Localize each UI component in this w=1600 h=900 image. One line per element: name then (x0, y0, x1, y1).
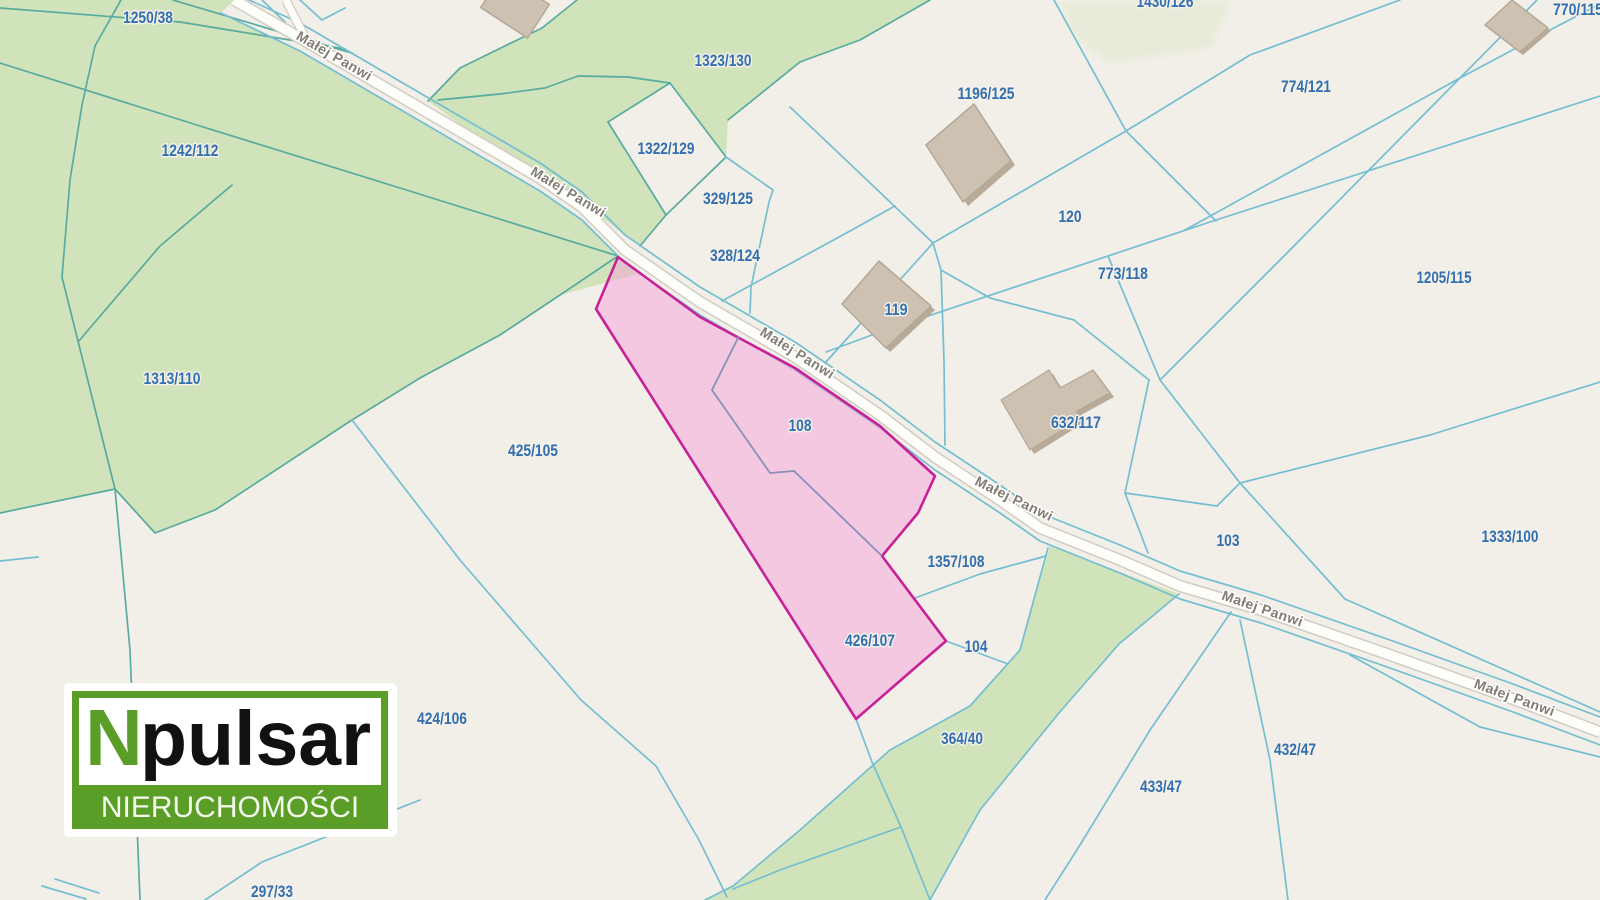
svg-text:120: 120 (1059, 207, 1082, 226)
svg-text:1357/108: 1357/108 (928, 552, 985, 571)
svg-text:1250/38: 1250/38 (123, 8, 173, 27)
svg-text:108: 108 (789, 416, 812, 435)
svg-text:1323/130: 1323/130 (695, 51, 752, 70)
svg-text:328/124: 328/124 (710, 246, 760, 265)
svg-text:1322/129: 1322/129 (638, 139, 695, 158)
svg-text:1430/126: 1430/126 (1137, 0, 1194, 11)
svg-text:1196/125: 1196/125 (958, 84, 1015, 103)
svg-text:433/47: 433/47 (1140, 777, 1182, 796)
svg-text:770/115: 770/115 (1553, 0, 1600, 19)
svg-text:426/107: 426/107 (845, 631, 895, 650)
svg-text:297/33: 297/33 (251, 882, 293, 900)
svg-text:104: 104 (965, 637, 988, 656)
svg-text:774/121: 774/121 (1281, 77, 1331, 96)
svg-text:1313/110: 1313/110 (144, 369, 201, 388)
svg-text:103: 103 (1217, 531, 1240, 550)
svg-text:773/118: 773/118 (1098, 264, 1148, 283)
svg-text:pulsar: pulsar (140, 696, 371, 782)
svg-text:1242/112: 1242/112 (162, 141, 219, 160)
svg-text:329/125: 329/125 (703, 189, 753, 208)
svg-text:364/40: 364/40 (941, 729, 983, 748)
svg-text:424/106: 424/106 (417, 709, 467, 728)
svg-text:119: 119 (885, 300, 908, 319)
svg-text:1205/115: 1205/115 (1417, 268, 1472, 287)
svg-text:NIERUCHOMOŚCI: NIERUCHOMOŚCI (101, 790, 359, 824)
svg-text:432/47: 432/47 (1274, 740, 1316, 759)
svg-text:1333/100: 1333/100 (1482, 527, 1539, 546)
svg-text:425/105: 425/105 (508, 441, 558, 460)
svg-text:632/117: 632/117 (1051, 413, 1101, 432)
svg-text:N: N (85, 693, 143, 782)
